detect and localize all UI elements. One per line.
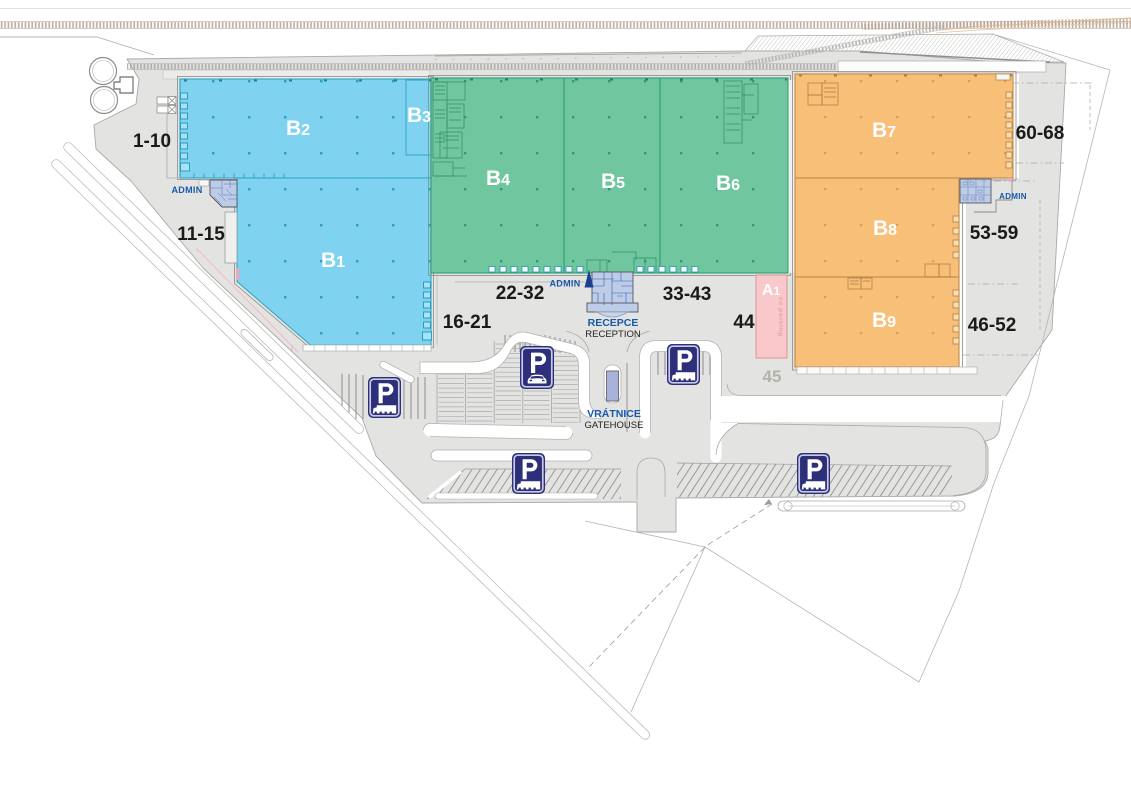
svg-text:46-52: 46-52: [968, 315, 1017, 336]
svg-text:16-21: 16-21: [443, 312, 492, 333]
svg-text:co packing: co packing: [777, 297, 784, 337]
svg-text:60-68: 60-68: [1016, 123, 1065, 144]
svg-text:22-32: 22-32: [496, 283, 545, 304]
svg-text:RECEPTION: RECEPTION: [585, 329, 641, 340]
svg-text:ADMIN: ADMIN: [550, 279, 581, 289]
svg-text:44: 44: [733, 312, 755, 333]
svg-text:33-43: 33-43: [663, 284, 712, 305]
svg-text:45: 45: [763, 367, 782, 386]
svg-text:VRÁTNICE: VRÁTNICE: [587, 407, 641, 420]
svg-text:ADMIN: ADMIN: [172, 185, 203, 195]
svg-text:RECEPCE: RECEPCE: [588, 317, 639, 329]
svg-text:53-59: 53-59: [970, 223, 1019, 244]
svg-text:ADMIN: ADMIN: [999, 192, 1027, 201]
svg-text:11-15: 11-15: [177, 224, 225, 245]
svg-text:GATEHOUSE: GATEHOUSE: [585, 420, 644, 431]
svg-text:1-10: 1-10: [133, 131, 171, 152]
